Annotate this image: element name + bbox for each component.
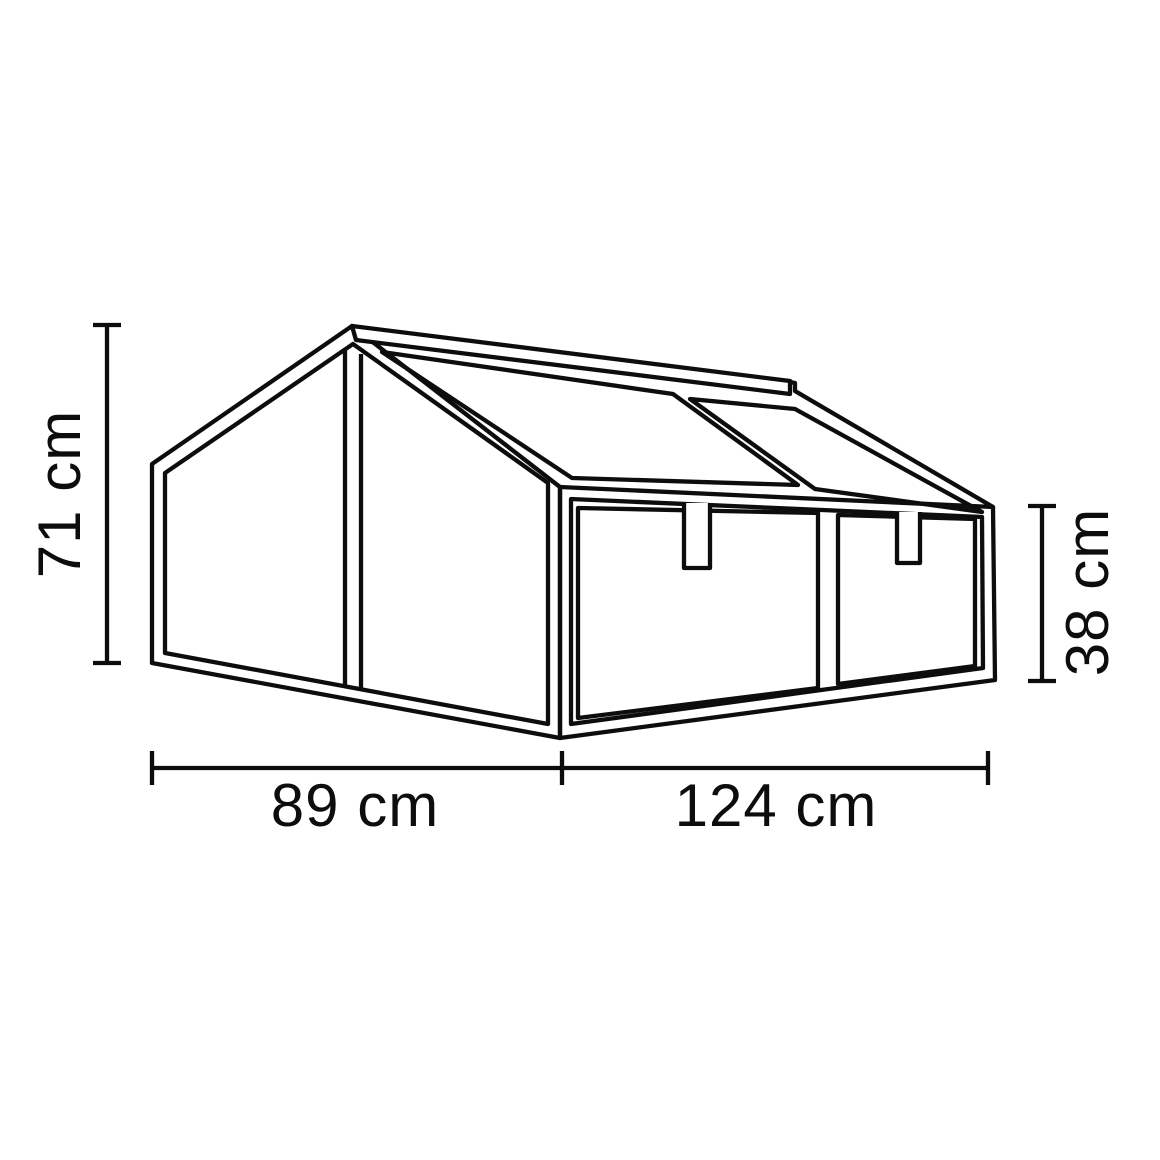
cold-frame-dimension-diagram: 71 cm 38 cm 89 cm 124 cm (0, 0, 1160, 1160)
back-height-label: 71 cm (26, 410, 93, 578)
left-panel-hinge-tab (684, 503, 710, 568)
front-face-outer-outline (560, 487, 995, 738)
dimension-bottom: 89 cm 124 cm (152, 751, 988, 839)
dimension-front-height: 38 cm (1028, 506, 1121, 681)
right-panel-hinge-tab (897, 512, 920, 563)
dimension-back-height: 71 cm (26, 325, 121, 663)
ridge-beam (352, 326, 790, 394)
dimension-annotations: 71 cm 38 cm 89 cm 124 cm (26, 325, 1121, 839)
front-width-label: 124 cm (675, 772, 878, 839)
gable-inner-outline (165, 344, 548, 724)
left-lid-outline (382, 352, 798, 485)
diagram-canvas: 71 cm 38 cm 89 cm 124 cm (0, 0, 1160, 1160)
side-depth-label: 89 cm (271, 772, 439, 839)
gable-outer-outline (152, 326, 560, 738)
front-height-label: 38 cm (1054, 508, 1121, 676)
greenhouse-drawing (152, 326, 995, 738)
